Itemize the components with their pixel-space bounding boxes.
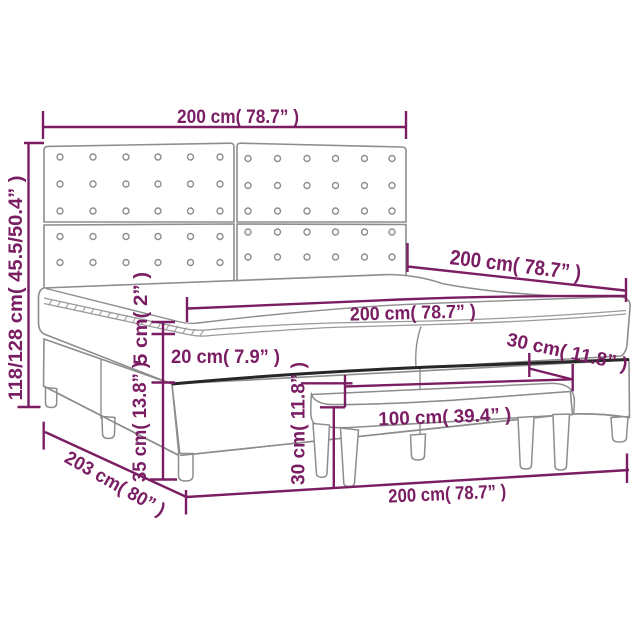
svg-text:118/128 cm( 45.5/50.4” ): 118/128 cm( 45.5/50.4” ) [6,176,27,401]
svg-text:20 cm( 7.9” ): 20 cm( 7.9” ) [171,347,280,368]
svg-text:100 cm( 39.4” ): 100 cm( 39.4” ) [378,405,512,431]
svg-text:35 cm( 13.8” ): 35 cm( 13.8” ) [130,362,151,482]
svg-text:203 cm( 80” ): 203 cm( 80” ) [61,447,169,520]
svg-text:5 cm( 2” ): 5 cm( 2” ) [131,272,152,365]
svg-text:200 cm( 78.7” ): 200 cm( 78.7” ) [388,481,507,507]
svg-text:200 cm( 78.7” ): 200 cm( 78.7” ) [350,301,477,325]
svg-text:30 cm( 11.8” ): 30 cm( 11.8” ) [289,362,310,485]
svg-text:200 cm( 78.7” ): 200 cm( 78.7” ) [177,106,299,128]
